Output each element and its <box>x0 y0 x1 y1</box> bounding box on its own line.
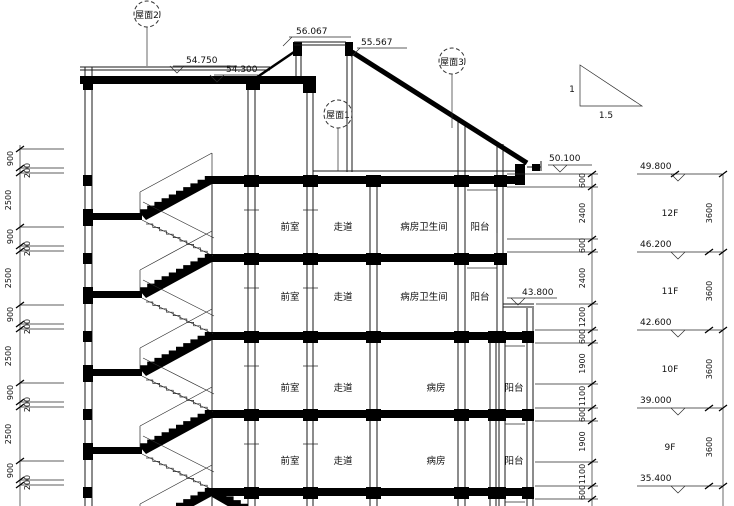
elevation-label-roof-struct: 54.300 <box>226 65 258 75</box>
room-label: 病房卫生间 <box>400 291 448 303</box>
elevation-label: 42.600 <box>640 318 672 328</box>
building-section-drawing: 900 200 2500 900 200 2500 900 200 2500 9… <box>0 0 734 506</box>
floor-height-label: 3600 <box>705 281 714 301</box>
room-label: 阳台 <box>504 382 523 394</box>
dim-label: 2500 <box>4 346 13 366</box>
dim-label: 600 <box>578 485 587 500</box>
room-label: 走道 <box>333 382 353 394</box>
dim-label: 600 <box>578 238 587 253</box>
dim-label: 900 <box>6 385 15 400</box>
elevation-label-roof-finish: 54.750 <box>186 56 218 66</box>
floor-height-label: 3600 <box>705 437 714 457</box>
elevation-label-ridge: 56.067 <box>296 27 328 37</box>
elevation-label-parapet: 50.100 <box>549 154 581 164</box>
dim-label: 200 <box>23 397 32 412</box>
floor-label-10f: 10F <box>662 365 679 375</box>
room-label: 前室 <box>280 221 299 233</box>
dim-label: 2500 <box>4 190 13 210</box>
dim-label: 2500 <box>4 424 13 444</box>
section-canvas: 900 200 2500 900 200 2500 900 200 2500 9… <box>0 0 734 506</box>
room-label: 病房卫生间 <box>400 221 448 233</box>
dim-label: 200 <box>23 475 32 490</box>
floor-label-9f: 9F <box>665 443 676 453</box>
room-label: 走道 <box>333 221 353 233</box>
room-label: 走道 <box>333 455 353 467</box>
dim-label: 2400 <box>578 203 587 223</box>
elevation-label-ledge: 43.800 <box>522 288 554 298</box>
dim-label: 900 <box>6 151 15 166</box>
dim-label: 600 <box>578 173 587 188</box>
room-label: 前室 <box>280 291 299 303</box>
elevation-label: 39.000 <box>640 396 672 406</box>
dim-label: 600 <box>578 329 587 344</box>
roof-callout-label: 屋面2 <box>135 10 159 21</box>
floor-height-label: 3600 <box>705 203 714 223</box>
floor-height-label: 3600 <box>705 359 714 379</box>
dim-label: 2500 <box>4 268 13 288</box>
room-label: 前室 <box>280 382 299 394</box>
floor-label-11f: 11F <box>662 287 679 297</box>
elevation-label-ridge-step: 55.567 <box>361 38 393 48</box>
dim-label: 1100 <box>578 386 587 406</box>
room-label: 走道 <box>333 291 353 303</box>
dim-label: 1900 <box>578 353 587 373</box>
room-label: 病房 <box>426 382 445 394</box>
roof-callout-label: 屋面1 <box>326 110 350 121</box>
floor-label-12f: 12F <box>662 209 679 219</box>
room-label: 阳台 <box>470 291 489 303</box>
dim-label: 1900 <box>578 431 587 451</box>
slope-rise-label: 1 <box>569 85 575 95</box>
room-label: 阳台 <box>504 455 523 467</box>
dim-label: 900 <box>6 307 15 322</box>
dim-label: 2400 <box>578 268 587 288</box>
dim-label: 200 <box>23 319 32 334</box>
elevation-label: 35.400 <box>640 474 672 484</box>
dim-label: 1200 <box>578 307 587 327</box>
slope-run-label: 1.5 <box>599 111 613 121</box>
room-label: 病房 <box>426 455 445 467</box>
dim-label: 900 <box>6 463 15 478</box>
elevation-label: 46.200 <box>640 240 672 250</box>
room-label: 前室 <box>280 455 299 467</box>
dim-label: 900 <box>6 229 15 244</box>
room-label: 阳台 <box>470 221 489 233</box>
dim-label: 600 <box>578 407 587 422</box>
dim-label: 1100 <box>578 464 587 484</box>
dim-label: 200 <box>23 163 32 178</box>
roof-callout-label: 屋面3 <box>440 57 464 68</box>
elevation-label: 49.800 <box>640 162 672 172</box>
dim-label: 200 <box>23 241 32 256</box>
